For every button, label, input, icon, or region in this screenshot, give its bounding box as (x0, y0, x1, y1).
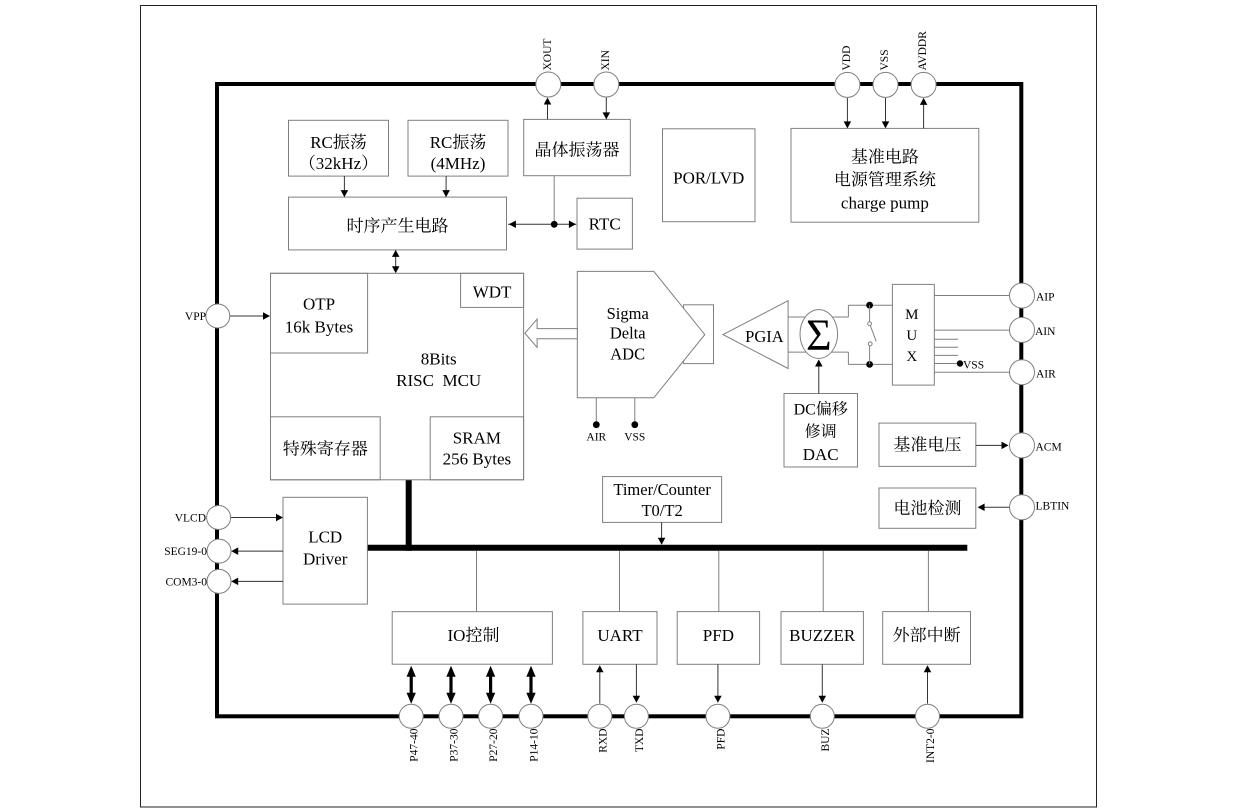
svg-text:Driver: Driver (303, 550, 348, 569)
svg-text:XOUT: XOUT (542, 39, 554, 71)
svg-text:PFD: PFD (715, 729, 727, 750)
svg-text:Σ: Σ (806, 311, 832, 360)
svg-text:P14-10: P14-10 (529, 728, 541, 761)
svg-text:Sigma: Sigma (607, 304, 650, 323)
svg-text:AVDDR: AVDDR (917, 31, 929, 71)
svg-text:BUZZER: BUZZER (789, 626, 856, 645)
svg-text:VLCD: VLCD (175, 513, 206, 525)
svg-text:AIP: AIP (1036, 292, 1055, 304)
svg-text:IO: IO (448, 626, 466, 645)
svg-text:COM3-0: COM3-0 (165, 577, 207, 589)
svg-text:VPP: VPP (185, 311, 206, 323)
svg-text:RTC: RTC (589, 215, 621, 234)
svg-text:UART: UART (597, 626, 643, 645)
svg-text:M: M (905, 307, 918, 323)
svg-text:INT2-0: INT2-0 (925, 728, 937, 763)
svg-text:U: U (906, 328, 917, 344)
svg-text:XIN: XIN (600, 49, 612, 70)
svg-text:Timer/Counter: Timer/Counter (613, 480, 711, 499)
svg-text:VDD: VDD (841, 46, 853, 71)
svg-text:AIR: AIR (586, 431, 606, 443)
svg-text:ADC: ADC (610, 345, 645, 364)
svg-text:RXD: RXD (597, 729, 609, 753)
svg-text:OTP: OTP (303, 295, 335, 314)
svg-text:VSS: VSS (624, 431, 645, 443)
svg-text:32kHz: 32kHz (316, 154, 362, 173)
svg-text:VSS: VSS (879, 49, 891, 70)
svg-text:LBTIN: LBTIN (1036, 500, 1071, 512)
svg-text:(4MHz): (4MHz) (431, 154, 486, 173)
svg-text:PGIA: PGIA (745, 327, 784, 346)
svg-text:DC: DC (794, 401, 816, 418)
svg-text:AIR: AIR (1036, 368, 1056, 380)
svg-text:AIN: AIN (1035, 326, 1056, 338)
svg-text:PFD: PFD (703, 626, 734, 645)
svg-text:ACM: ACM (1036, 442, 1062, 454)
svg-text:256 Bytes: 256 Bytes (443, 449, 511, 468)
svg-text:charge pump: charge pump (841, 193, 929, 212)
svg-text:T0/T2: T0/T2 (641, 501, 682, 520)
svg-text:RC: RC (430, 133, 453, 152)
svg-text:WDT: WDT (473, 282, 512, 301)
svg-text:P27-20: P27-20 (488, 728, 500, 761)
svg-text:POR/LVD: POR/LVD (673, 169, 744, 188)
svg-text:Delta: Delta (610, 324, 646, 343)
svg-text:DAC: DAC (803, 445, 839, 464)
svg-text:LCD: LCD (308, 527, 342, 546)
svg-text:P37-30: P37-30 (449, 728, 461, 761)
svg-text:SEG19-0: SEG19-0 (164, 546, 207, 558)
svg-text:SRAM: SRAM (453, 429, 501, 448)
svg-text:VSS: VSS (963, 360, 984, 372)
svg-text:X: X (906, 349, 917, 365)
svg-text:16k Bytes: 16k Bytes (285, 318, 353, 337)
svg-text:BUZ: BUZ (820, 729, 832, 752)
svg-text:8Bits: 8Bits (421, 350, 457, 369)
svg-text:RC: RC (310, 133, 333, 152)
svg-text:RISC MCU: RISC MCU (396, 371, 481, 390)
svg-text:P47-40: P47-40 (409, 728, 421, 761)
svg-text:TXD: TXD (634, 729, 646, 753)
